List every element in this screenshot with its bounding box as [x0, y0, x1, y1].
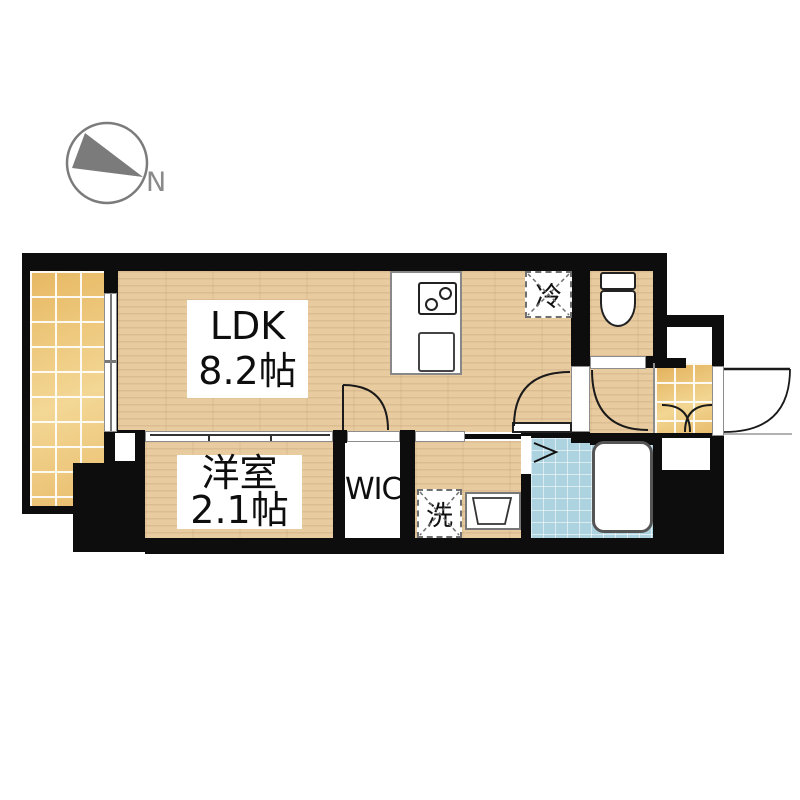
ldk-floor [118, 271, 571, 432]
wall-right-upper [712, 315, 724, 369]
sliding-door-track [150, 434, 330, 436]
genkan-entrance-floor [655, 363, 712, 433]
wall-wic-right [400, 430, 415, 538]
ldk-name: LDK [210, 304, 285, 349]
ldk-size: 8.2帖 [198, 349, 296, 394]
bathroom-doorway [521, 436, 531, 474]
shoe-cabinet [662, 438, 710, 470]
entrance-door-arc [724, 369, 790, 432]
wall-wic-left [333, 430, 345, 538]
compass-north-label: N [146, 167, 166, 198]
balcony-window [104, 293, 117, 432]
compass-north-icon [60, 115, 160, 215]
ldk-door-leaf [512, 422, 572, 433]
refrigerator-space: 冷 [525, 271, 572, 318]
bedroom-label-box: 洋室 2.1帖 [177, 455, 302, 529]
kitchen-sink [418, 332, 455, 372]
wall-ldk-washroom-line [465, 434, 523, 439]
hallway-floor [590, 366, 653, 433]
stove [418, 282, 457, 315]
bedroom-sliding-door [145, 431, 333, 442]
bathtub [592, 441, 653, 533]
floor-plan-canvas: N [0, 0, 800, 800]
burner-2 [425, 298, 438, 311]
wall-genkan-stub [660, 358, 686, 368]
washroom-doorway [415, 431, 465, 442]
wall-balcony-left [22, 253, 30, 514]
window-mid-tick [105, 360, 116, 363]
toilet-tank [600, 272, 636, 290]
wic-doorway [347, 431, 400, 442]
genkan-edge-line [653, 363, 655, 433]
sliding-door-tick-1 [208, 434, 210, 441]
wall-left-corner-block [73, 463, 145, 552]
sliding-door-tick-2 [270, 434, 272, 441]
vanity-basin-unit [465, 492, 521, 530]
refrigerator-label: 冷 [535, 275, 562, 314]
burner-1 [439, 287, 452, 300]
washer-label: 洗 [426, 494, 453, 533]
kitchen-counter [390, 271, 462, 375]
toilet-doorway [590, 356, 646, 369]
washer-space: 洗 [417, 489, 462, 538]
entrance-doorway [712, 366, 724, 436]
wall-toilet-right [653, 253, 667, 368]
bedroom-name: 洋室 [201, 455, 277, 492]
ldk-label-box: LDK 8.2帖 [187, 300, 308, 398]
wall-bottom [145, 538, 724, 554]
compass-needle [72, 133, 143, 177]
wall-niche [115, 433, 135, 461]
ldk-hall-doorway [571, 366, 590, 432]
wic-label: WIC [345, 472, 400, 507]
bedroom-size: 2.1帖 [190, 492, 288, 529]
